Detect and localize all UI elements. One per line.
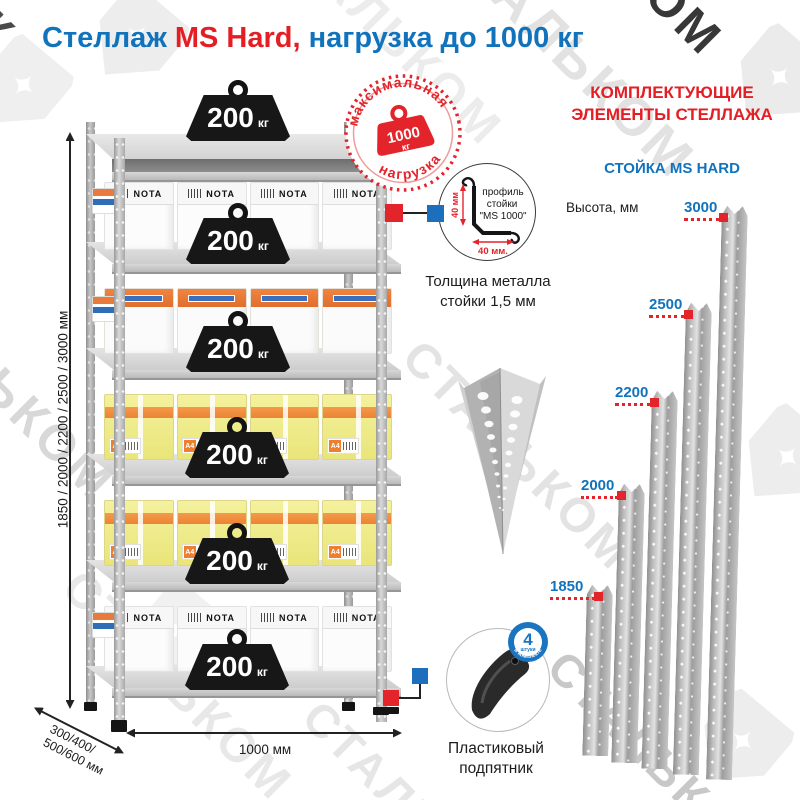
components-header: КОМПЛЕКТУЮЩИЕ ЭЛЕМЕНТЫ СТЕЛЛАЖА (543, 82, 800, 126)
badge-note: в комплекте (512, 648, 543, 660)
callout-marker-red (385, 204, 403, 222)
post-height-label: 1850 (550, 578, 583, 595)
width-dimension-label: 1000 мм (200, 742, 330, 757)
height-dimension-label: 1850 / 2000 / 2200 / 2500 / 3000 мм (56, 295, 71, 545)
a4-tag: A4 (329, 440, 341, 452)
barcode-icon (261, 189, 275, 198)
corner-post-perspective (450, 358, 554, 566)
components-subheader: СТОЙКА MS HARD (543, 160, 800, 177)
load-unit: кг (258, 347, 269, 361)
box-brand-label: NOTA (133, 613, 162, 623)
barcode-icon (334, 613, 348, 622)
upright-post-2500 (673, 303, 712, 776)
box-endcap (92, 296, 116, 322)
load-value: 200 (206, 547, 253, 575)
shelf-load-weight: 200кг (186, 311, 290, 372)
barcode-icon (125, 548, 139, 556)
box-label (188, 295, 235, 302)
barcode-icon (343, 548, 357, 556)
shelf-load-weight: 200кг (185, 523, 289, 584)
post-height-label: 2500 (649, 296, 682, 313)
load-value: 200 (206, 441, 253, 469)
rack-foot (111, 720, 127, 732)
rack-foot (383, 707, 399, 714)
post-height-label: 2000 (581, 477, 614, 494)
shelf-front-edge (112, 264, 401, 274)
callout-marker-red (383, 690, 399, 706)
load-value: 200 (207, 335, 254, 363)
quantity-badge: 4 штуки в комплекте (508, 622, 548, 662)
rack-post-front-left (114, 138, 125, 722)
sparkle-icon: ✦ (0, 62, 46, 111)
load-unit: кг (257, 665, 268, 679)
page-title: Стеллаж MS Hard, нагрузка до 1000 кг (42, 22, 584, 55)
load-unit: кг (258, 239, 269, 253)
paper-label: A4 (327, 544, 359, 560)
title-model: MS Hard, (175, 22, 301, 54)
shelf-load-weight: 200кг (186, 203, 290, 264)
callout-line (403, 212, 427, 214)
profile-caption: профиль (482, 186, 523, 198)
post-height-label: 2200 (615, 384, 648, 401)
svg-text:в комплекте: в комплекте (512, 648, 543, 660)
rack-foot (342, 702, 355, 711)
profile-dim-horizontal: 40 мм. (478, 246, 508, 257)
upright-post-2200 (641, 391, 678, 770)
box-brand-label: NOTA (206, 613, 235, 623)
paper-label: A4 (327, 438, 359, 454)
shelf-load-weight: 200кг (186, 80, 290, 141)
post-height-label: 3000 (684, 199, 717, 216)
load-value: 200 (207, 104, 254, 132)
box-endcap (92, 612, 116, 638)
barcode-icon (343, 442, 357, 450)
box-label (333, 295, 380, 302)
box-brand-label: NOTA (279, 189, 308, 199)
barcode-icon (125, 442, 139, 450)
load-unit: кг (257, 559, 268, 573)
load-value: 200 (206, 653, 253, 681)
upright-post-1850 (582, 585, 613, 757)
profile-caption: "MS 1000" (479, 211, 527, 222)
callout-marker-blue (412, 668, 428, 684)
box-brand-label: NOTA (279, 613, 308, 623)
barcode-icon (261, 613, 275, 622)
barcode-icon (334, 189, 348, 198)
shelf-load-weight: 200кг (185, 629, 289, 690)
load-value: 200 (207, 227, 254, 255)
thickness-note: Толщина металла стойки 1,5 мм (398, 272, 578, 311)
width-dimension-line (130, 732, 398, 734)
box-label (261, 295, 308, 302)
load-unit: кг (258, 116, 269, 130)
box-endcap (92, 188, 116, 214)
plastic-foot-label: Пластиковый подпятник (418, 739, 574, 779)
profile-caption: стойки (487, 199, 518, 210)
title-suffix: нагрузка до 1000 кг (301, 22, 584, 54)
height-axis-label: Высота, мм (566, 200, 638, 215)
load-unit: кг (257, 453, 268, 467)
title-product: Стеллаж (42, 22, 175, 54)
a4-tag: A4 (329, 546, 341, 558)
rack-foot (84, 702, 97, 711)
rack-post-front-right (376, 138, 387, 722)
callout-line (419, 684, 421, 699)
profile-dim-vertical: 40 мм (450, 192, 460, 218)
barcode-icon (188, 613, 202, 622)
shelf-load-weight: 200кг (185, 417, 289, 478)
infographic-canvas: СТАЛЬКОМ СТАЛЬКОМ СТАЛЬКОМ СТАЛЬКОМ СТАЛ… (0, 0, 800, 800)
max-load-stamp: максимальная нагрузка 1000 кг (331, 61, 476, 206)
box-brand-label: NOTA (206, 189, 235, 199)
barcode-icon (188, 189, 202, 198)
callout-line (399, 697, 421, 699)
callout-marker-blue (427, 205, 444, 222)
box-brand-label: NOTA (133, 189, 162, 199)
sparkle-icon: ✦ (763, 434, 800, 483)
